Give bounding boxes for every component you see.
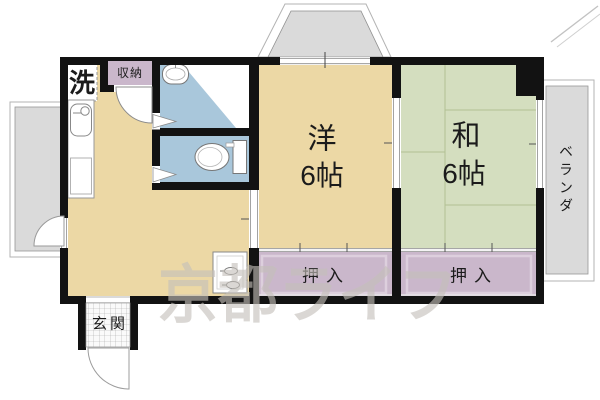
faucet — [81, 107, 89, 115]
bathtub — [163, 65, 189, 85]
storage-label: 収納 — [117, 67, 143, 79]
bathroom — [160, 65, 249, 129]
toilet — [195, 141, 247, 174]
japanese-room-label: 和 — [451, 123, 480, 152]
veranda-label: ベランダ — [559, 144, 573, 216]
watermark: 京都ライフ — [158, 264, 458, 327]
entrance-door-swing — [88, 348, 129, 389]
japanese-room-size: 6帖 — [442, 160, 486, 188]
western-room-size: 6帖 — [300, 162, 344, 190]
neighbor-outline — [551, 6, 600, 47]
entrance-label: 玄関 — [92, 317, 128, 332]
laundry-label: 洗 — [69, 70, 95, 96]
floorplan: 洗 収納 洋 6帖 和 6帖 押入 押入 玄関 ベランダ 京都ライフ — [0, 0, 600, 400]
western-room-label: 洋 — [307, 126, 336, 155]
kitchen-counter — [68, 100, 94, 198]
western-room-floor — [254, 61, 397, 251]
floorplan-canvas — [0, 0, 600, 400]
bay-window — [258, 4, 391, 57]
